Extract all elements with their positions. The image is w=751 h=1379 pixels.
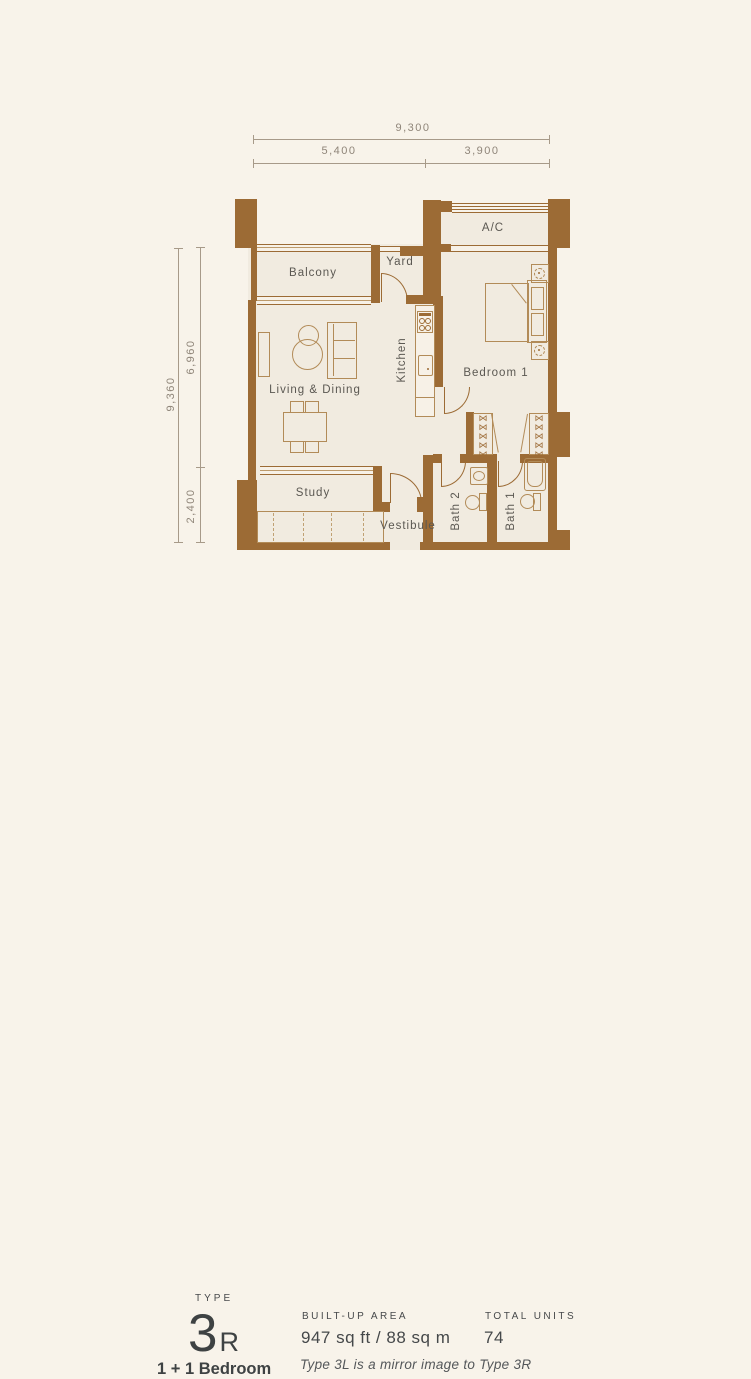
type-label: TYPE <box>195 1293 233 1304</box>
dim-height-upper: 6,960 <box>185 339 197 374</box>
hanger-icon: ⋈ <box>479 450 488 459</box>
pillow <box>531 313 544 336</box>
floor-plan-page: { "plan": { "rooms": { "balcony": "Balco… <box>0 0 751 800</box>
desk-divider <box>273 513 274 541</box>
label-vestibule: Vestibule <box>380 520 436 532</box>
dim-width-total: 9,300 <box>395 122 430 134</box>
wall-bottom-right <box>420 542 570 550</box>
desk-divider <box>331 513 332 541</box>
wall-bath1-east <box>548 457 557 530</box>
wall-ac-stub <box>440 201 452 212</box>
label-living-dining: Living & Dining <box>269 384 361 396</box>
ac-louver-vent <box>452 203 548 213</box>
dim-tick <box>174 248 183 249</box>
stove-panel <box>419 313 431 316</box>
window-mullion <box>260 470 373 471</box>
dim-line-width-left <box>253 163 426 164</box>
window-mullion <box>257 300 371 301</box>
wardrobe-right: ⋈⋈⋈⋈⋈ <box>529 413 549 455</box>
sofa-cushion-line <box>333 340 355 341</box>
wall-balcony-west <box>251 247 257 301</box>
nightstand <box>531 264 549 283</box>
label-balcony: Balcony <box>289 267 337 279</box>
nightstand <box>531 341 549 360</box>
type-suffix: R <box>219 1327 240 1358</box>
wall-yard-north-arm <box>400 246 423 256</box>
dim-tick <box>196 247 205 248</box>
kitchen-sink <box>418 355 433 376</box>
label-ac: A/C <box>482 222 504 234</box>
lamp-dot <box>538 272 540 274</box>
bed <box>485 283 529 342</box>
label-yard: Yard <box>386 256 413 268</box>
bath2-basin <box>473 471 485 481</box>
dining-chair <box>290 401 304 413</box>
balcony-window <box>257 244 371 252</box>
dining-chair <box>305 441 319 453</box>
label-bath2: Bath 2 <box>450 491 462 530</box>
built-up-area-value: 947 sq ft / 88 sq m <box>301 1328 450 1348</box>
type-value: 3 R <box>188 1307 240 1360</box>
mirror-note: Type 3L is a mirror image to Type 3R <box>300 1357 531 1372</box>
wall-study-east <box>373 466 382 503</box>
pillow <box>531 287 544 310</box>
yard-window <box>380 246 400 252</box>
wall-balcony-yard-divider <box>371 245 380 303</box>
lamp-dot <box>538 349 540 351</box>
dim-tick <box>549 159 550 168</box>
total-units-value: 74 <box>484 1328 504 1348</box>
desk-divider <box>363 513 364 541</box>
dining-chair <box>290 441 304 453</box>
side-table <box>298 325 319 346</box>
dim-height-total: 9,360 <box>165 376 177 411</box>
lamp-icon <box>534 268 545 279</box>
wall-living-west <box>248 300 256 481</box>
dining-chair <box>305 401 319 413</box>
lamp-icon <box>534 345 545 356</box>
balcony-sliding-door <box>257 296 371 305</box>
sink-drain <box>427 368 429 370</box>
dim-width-left: 5,400 <box>321 145 356 157</box>
label-study: Study <box>296 487 330 499</box>
dim-tick <box>174 542 183 543</box>
dim-tick <box>196 542 205 543</box>
wall-block-right-mid <box>548 412 570 457</box>
dim-tick <box>253 159 254 168</box>
dim-line-width-total <box>253 139 550 140</box>
wall-pillar-top-right <box>548 199 570 248</box>
burner <box>425 318 431 324</box>
built-up-area-label: BUILT-UP AREA <box>302 1311 408 1322</box>
study-desk <box>257 511 384 543</box>
burner <box>425 325 431 331</box>
bath1-toilet-bowl <box>520 494 535 509</box>
stove <box>417 311 433 333</box>
bath1-tub <box>524 458 546 491</box>
dim-line-height-upper <box>200 247 201 468</box>
wardrobe-left: ⋈⋈⋈⋈⋈ <box>473 413 493 455</box>
sofa <box>327 322 357 379</box>
bath2-sink <box>470 467 488 485</box>
dim-line-width-right <box>426 163 550 164</box>
info-panel: TYPE 3 R 1 + 1 Bedroom BUILT-UP AREA 947… <box>0 640 751 760</box>
bedroom-config: 1 + 1 Bedroom <box>157 1360 271 1379</box>
wall-yard-ac-column <box>423 200 441 298</box>
wall-baths-divider <box>487 455 497 542</box>
sofa-backrest-line <box>333 324 334 376</box>
sofa-cushion-line <box>333 358 355 359</box>
dim-line-height-total <box>178 248 179 543</box>
dim-height-lower: 2,400 <box>185 488 197 523</box>
wall-pillar-bottom-left <box>237 480 257 550</box>
wall-bedroom-window-stub <box>440 244 451 252</box>
dim-width-right: 3,900 <box>464 145 499 157</box>
wall-pillar-top-left <box>235 199 257 248</box>
dining-table <box>283 412 327 442</box>
type-number: 3 <box>188 1307 217 1360</box>
bath1-tub-inner <box>527 461 543 487</box>
tv-console <box>258 332 270 377</box>
window-mullion <box>257 247 371 248</box>
label-bath1: Bath 1 <box>505 491 517 530</box>
dim-line-height-lower <box>200 468 201 543</box>
counter-divider <box>416 397 434 398</box>
wall-bedroom-east <box>548 248 557 412</box>
bath2-toilet-bowl <box>465 495 480 510</box>
wall-bottom-left <box>237 542 390 550</box>
total-units-label: TOTAL UNITS <box>485 1311 576 1322</box>
bedroom-window <box>451 245 548 252</box>
dim-tick <box>549 135 550 144</box>
study-window <box>260 466 373 475</box>
wall-yard-south-arm <box>406 295 434 304</box>
bath2-toilet-tank <box>479 493 487 511</box>
desk-divider <box>303 513 304 541</box>
label-kitchen: Kitchen <box>396 337 408 382</box>
label-bedroom1: Bedroom 1 <box>463 367 528 379</box>
dim-tick <box>253 135 254 144</box>
